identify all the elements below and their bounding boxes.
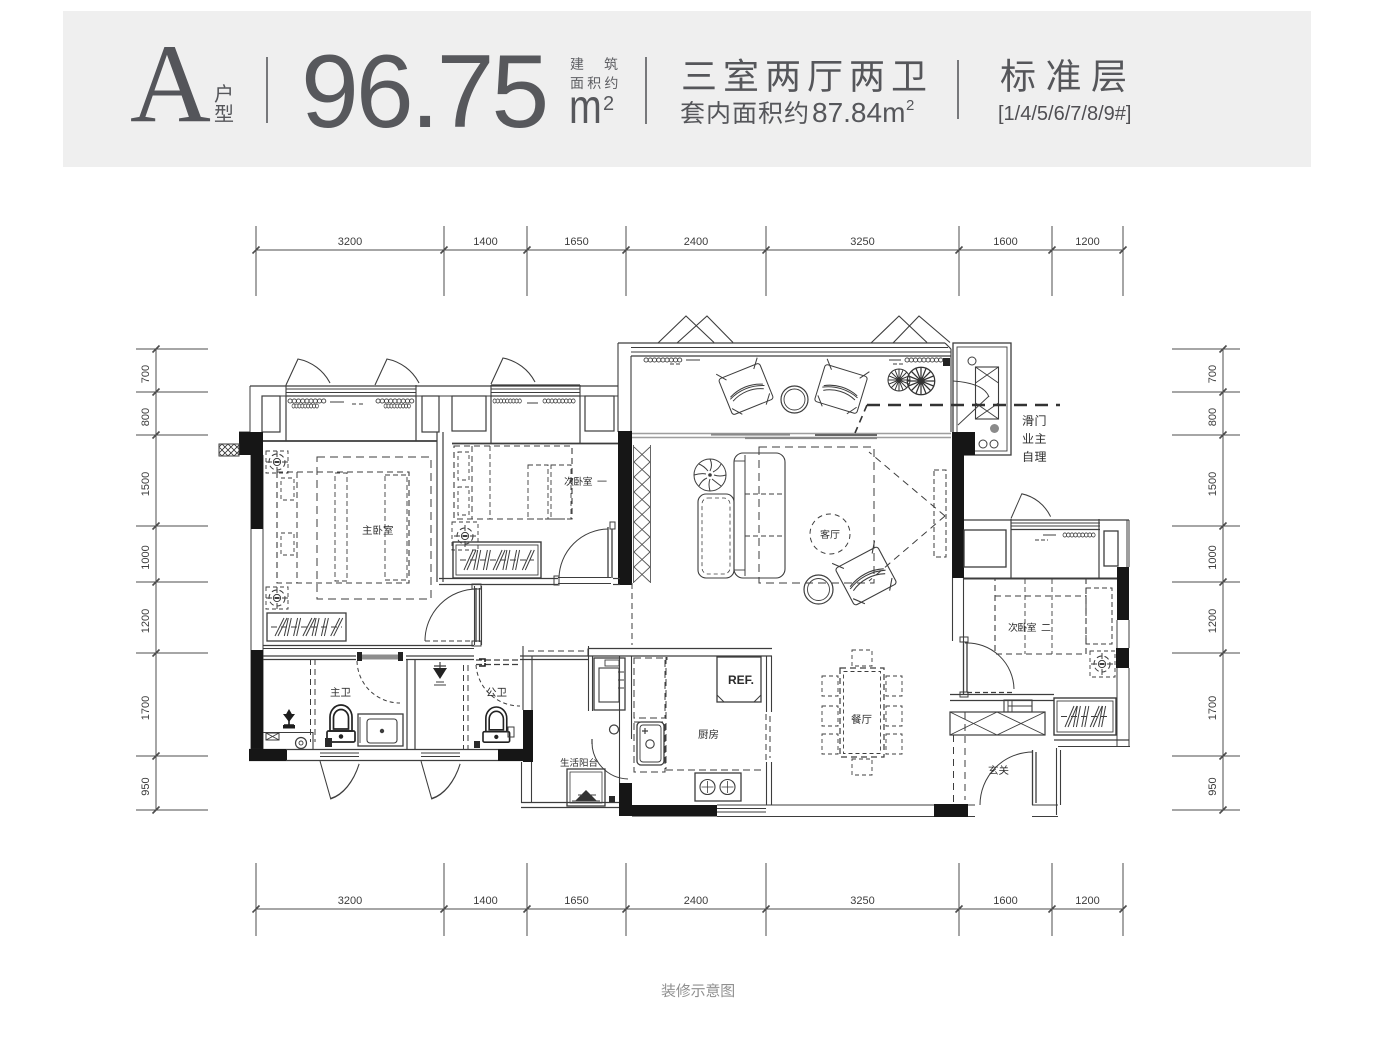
svg-text:3250: 3250 [850, 236, 874, 248]
svg-text:1500: 1500 [140, 472, 152, 496]
svg-text:950: 950 [1207, 777, 1219, 795]
svg-text:1600: 1600 [993, 895, 1017, 907]
svg-text:1200: 1200 [140, 609, 152, 633]
svg-text:1200: 1200 [1075, 236, 1099, 248]
svg-text:700: 700 [1207, 365, 1219, 383]
svg-text:2: 2 [906, 97, 914, 114]
svg-text:1600: 1600 [993, 236, 1017, 248]
svg-text:800: 800 [140, 408, 152, 426]
svg-text:2: 2 [603, 93, 614, 115]
svg-text:96.75: 96.75 [301, 34, 546, 150]
svg-text:REF.: REF. [728, 673, 754, 687]
svg-text:[1/4/5/6/7/8/9#]: [1/4/5/6/7/8/9#] [998, 103, 1131, 125]
svg-text:1200: 1200 [1207, 609, 1219, 633]
svg-text:m: m [569, 80, 602, 134]
svg-text:1650: 1650 [564, 236, 588, 248]
svg-text:1400: 1400 [473, 895, 497, 907]
svg-text:3200: 3200 [338, 895, 362, 907]
svg-text:3250: 3250 [850, 895, 874, 907]
svg-text:800: 800 [1207, 408, 1219, 426]
svg-text:700: 700 [140, 365, 152, 383]
svg-text:1650: 1650 [564, 895, 588, 907]
svg-text:1700: 1700 [1207, 696, 1219, 720]
svg-text:87.84m: 87.84m [812, 97, 905, 128]
svg-text:2400: 2400 [684, 236, 708, 248]
svg-text:1400: 1400 [473, 236, 497, 248]
svg-text:2400: 2400 [684, 895, 708, 907]
svg-text:1000: 1000 [140, 545, 152, 569]
svg-text:A: A [130, 22, 211, 146]
svg-text:3200: 3200 [338, 236, 362, 248]
svg-text:1200: 1200 [1075, 895, 1099, 907]
svg-text:1500: 1500 [1207, 472, 1219, 496]
svg-text:1700: 1700 [140, 696, 152, 720]
svg-text:1000: 1000 [1207, 545, 1219, 569]
svg-text:950: 950 [140, 777, 152, 795]
